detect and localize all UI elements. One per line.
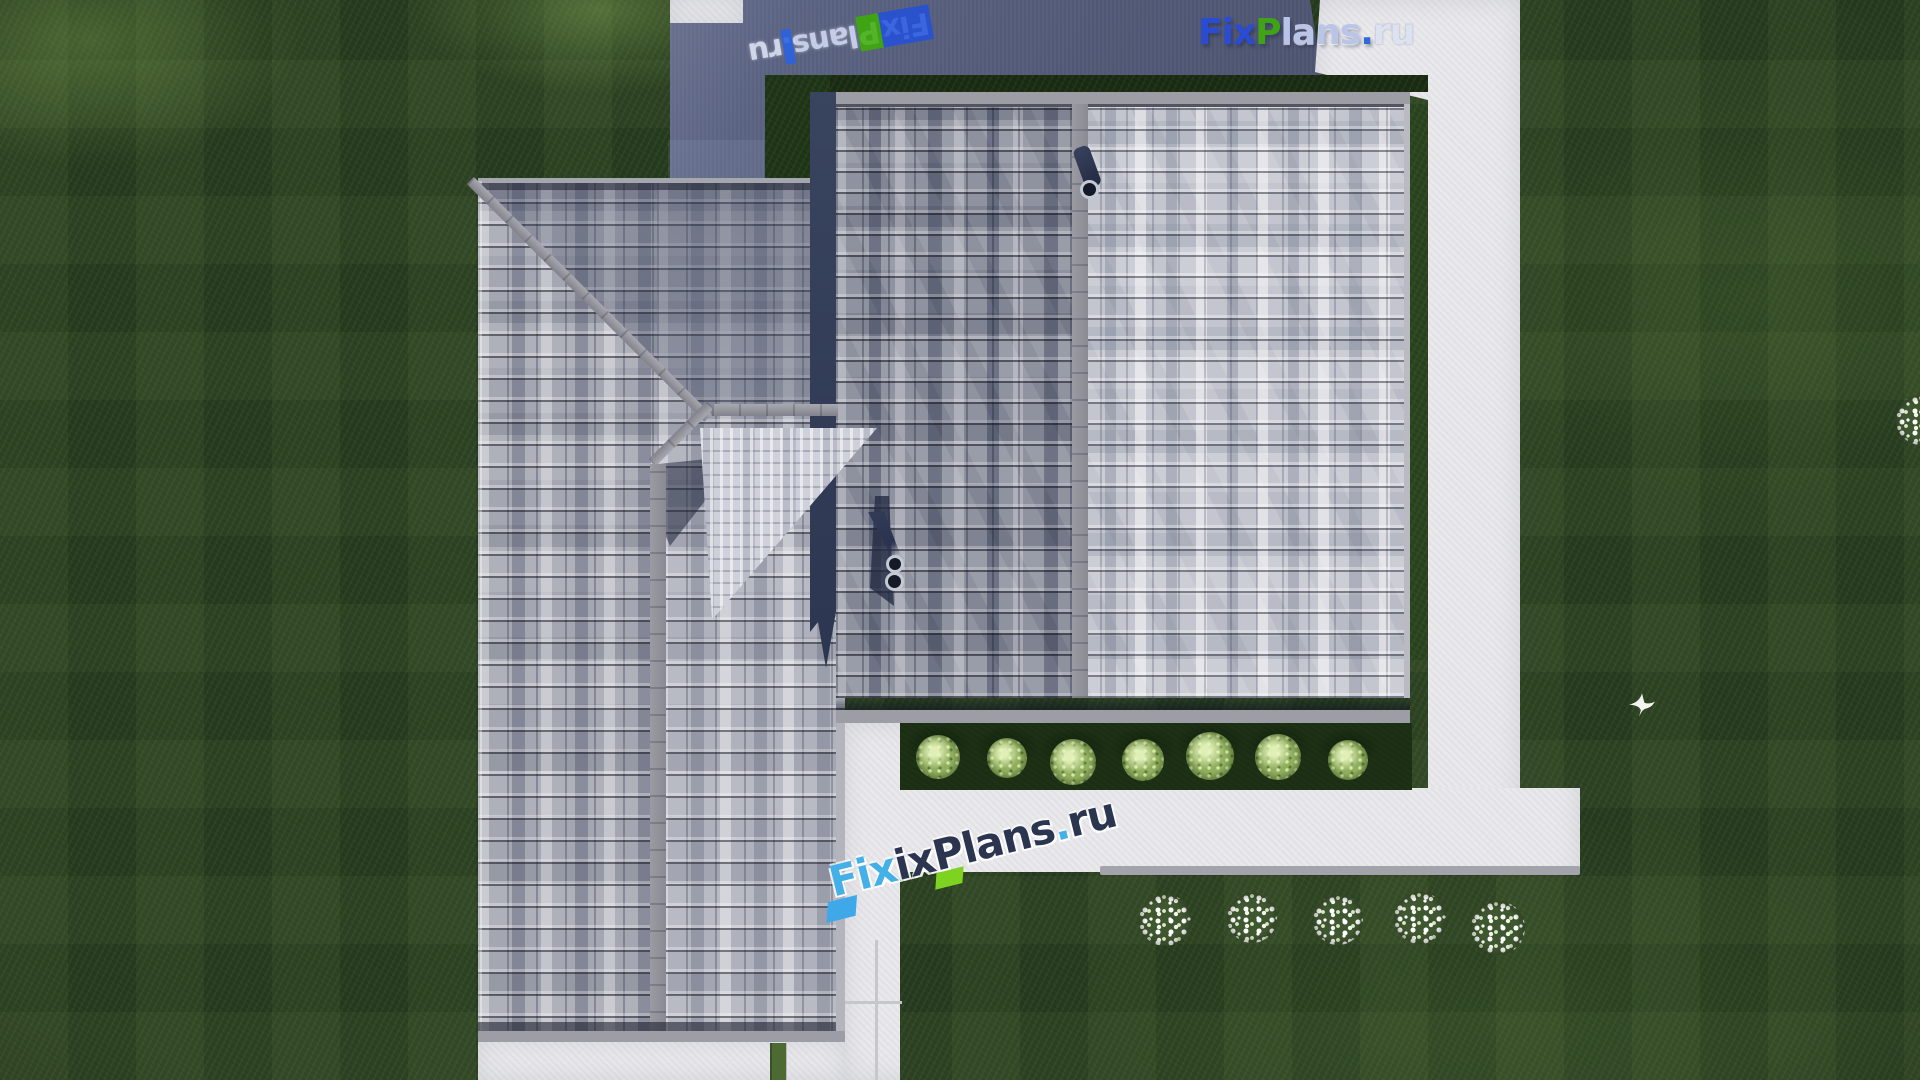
bird-icon [1628,692,1656,718]
walkway-top-left [670,0,743,23]
right-roof-west-slope [836,104,1074,698]
terrace-highlight [668,140,764,182]
render-canvas: FixPlans.ru FixPlans.ru FixlansixPlans.r… [0,0,1920,1080]
walkway-curb [1100,866,1580,875]
flower-bush [1139,894,1191,946]
hedge-bush [916,735,960,779]
connector-ridge [712,404,838,416]
hedge-bush [987,738,1027,778]
walkway-bottom-left [478,1040,845,1080]
hedge-bush [1255,734,1301,780]
left-roof-south-fascia [478,1031,845,1042]
grass-strip-east [1410,104,1428,660]
left-roof-ridge [650,464,666,1040]
right-roof-south-fascia [836,710,1410,723]
flower-bush [1313,895,1363,945]
watermark-top-right: FixPlans.ru [1198,12,1414,53]
flower-bush [1471,901,1525,955]
hedge-bush [1050,739,1096,785]
vent-pipe-2 [885,572,904,591]
left-roof-south-shadow [478,1022,845,1031]
hedge-bush [1122,739,1164,781]
grass-strip-north [830,75,1428,92]
valley-shadow-main [810,92,836,668]
vent-pipe-1 [886,555,904,573]
right-roof-south-shadow [836,696,1410,710]
paving-seam-vertical [875,940,878,1080]
watermark-text-ru: ru [746,30,786,70]
hedge-bush [1328,740,1368,780]
watermark-text-p: P [1255,12,1280,53]
watermark-text-dot: . [1360,12,1373,53]
watermark-text-ru: ru [1373,12,1414,53]
right-roof-east-slope [1074,104,1410,698]
flower-bush [1394,892,1446,944]
right-roof-north-fascia [836,92,1410,107]
hedge-bush [1186,732,1234,780]
left-roof-north-shadow [478,183,845,190]
watermark-text-fix: Fix [1198,12,1255,53]
flower-bush [1227,893,1277,943]
left-roof-west-edge [478,181,482,1040]
chimney-cap [1080,180,1099,199]
right-roof-east-edge [1404,104,1410,698]
watermark-text-lans: lans [1281,12,1361,53]
grass-sliver [770,1043,787,1080]
paving-seam-horizontal [845,1001,902,1004]
